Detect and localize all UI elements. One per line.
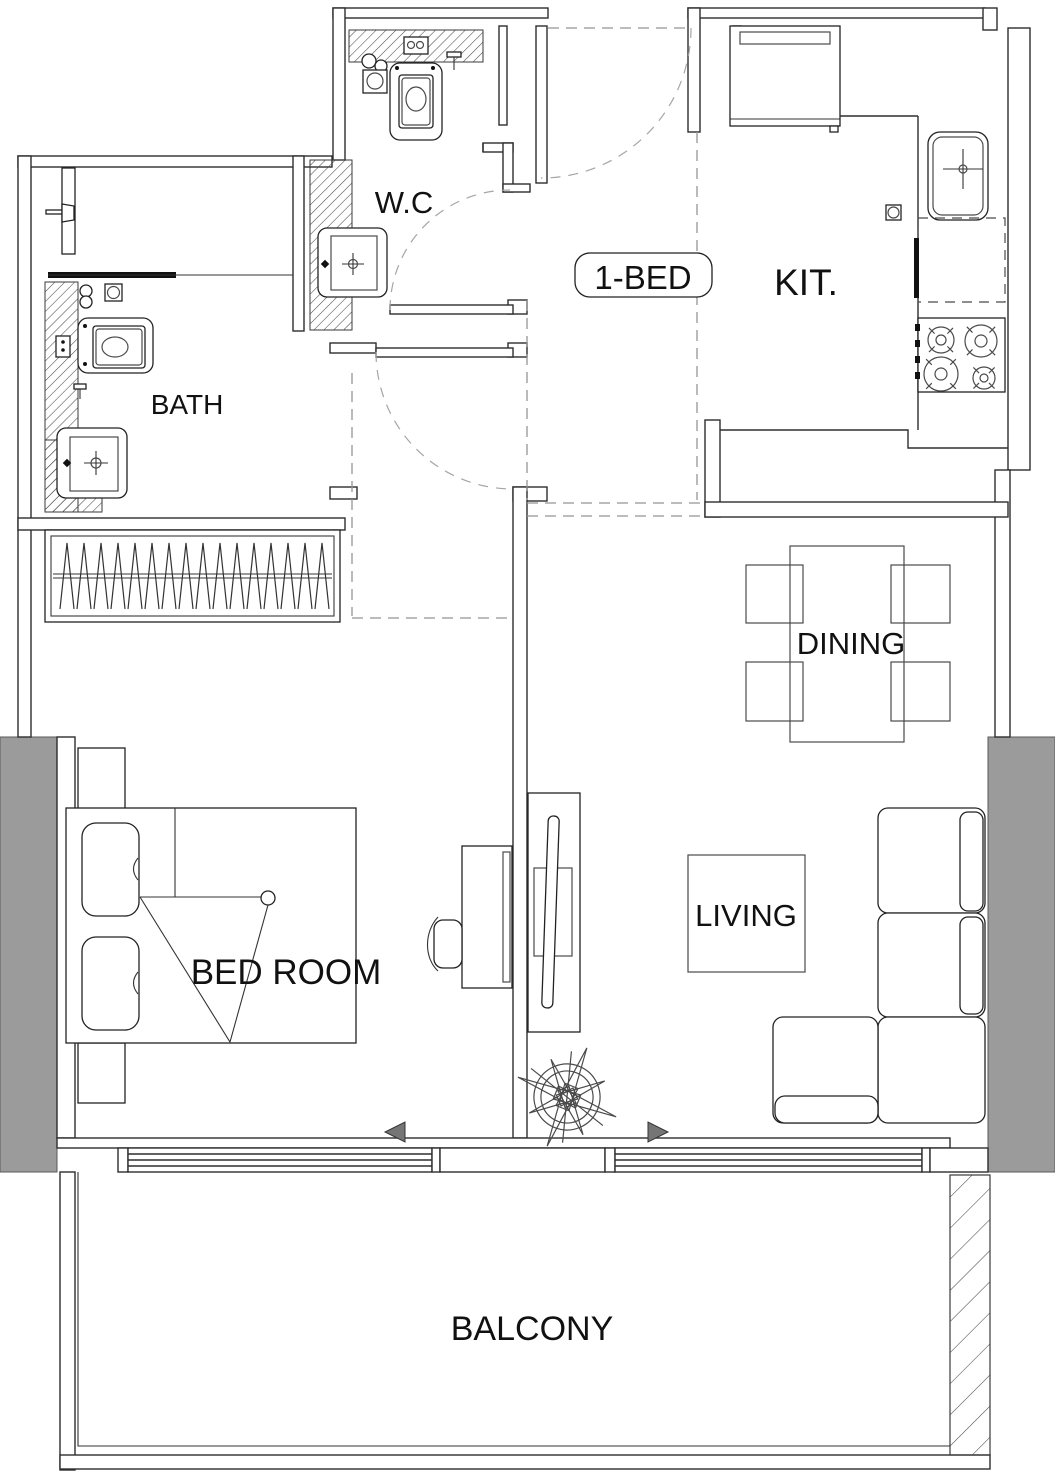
bath-label: BATH — [151, 389, 224, 420]
entry-door-swing — [541, 28, 691, 178]
living-label: LIVING — [695, 898, 797, 933]
desk-chair — [434, 920, 462, 968]
bath-door-leaf — [376, 348, 513, 357]
wc-door-leaf — [390, 305, 513, 314]
stove — [911, 313, 1009, 404]
bedroom-label: BED ROOM — [191, 953, 382, 992]
unit-label: 1-BED — [594, 259, 691, 296]
floor-plan-page: W.C 1-BED KIT. BATH DINING LIVING BED RO… — [0, 0, 1055, 1476]
bath-fixtures — [46, 168, 293, 498]
floor-plan-drawing: W.C 1-BED KIT. BATH DINING LIVING BED RO… — [0, 0, 1055, 1476]
balcony-side-hatch — [950, 1175, 990, 1455]
dining-chair — [746, 565, 803, 623]
column-right — [988, 737, 1055, 1172]
dining-chair — [746, 662, 803, 721]
unit-badge: 1-BED — [575, 253, 712, 297]
balcony-windows — [118, 1148, 988, 1172]
walls — [18, 8, 1030, 1470]
kitchen-sink — [928, 132, 988, 220]
desk — [428, 846, 513, 988]
dishwasher-dashed — [918, 218, 1005, 302]
nightstand — [78, 1043, 125, 1103]
nightstand — [78, 748, 125, 810]
bath-wall-valve — [56, 336, 70, 357]
bath-tap — [80, 285, 92, 297]
dining-chair — [891, 565, 950, 623]
pillow — [82, 823, 139, 916]
wc-tap — [447, 52, 461, 57]
wardrobe-hangers — [58, 540, 330, 612]
kitchen-label: KIT. — [774, 262, 838, 303]
entry-door-leaf — [536, 26, 547, 183]
fridge — [730, 26, 840, 126]
living-furniture — [528, 793, 985, 1123]
balcony-inner-edge — [78, 1172, 950, 1446]
dining-label: DINING — [797, 626, 906, 661]
kitchen-fixtures — [720, 26, 1009, 448]
wc-flush-knob — [362, 54, 376, 68]
bath-door-swing — [376, 352, 513, 489]
pillow — [82, 937, 139, 1030]
bath-tap-2 — [74, 384, 86, 389]
wc-label: W.C — [375, 185, 434, 220]
balcony-label: BALCONY — [451, 1310, 614, 1348]
column-left — [0, 737, 57, 1172]
dining-chair — [891, 662, 950, 721]
tv-unit — [528, 793, 580, 1032]
shower-head — [46, 210, 62, 214]
room-labels: W.C 1-BED KIT. BATH DINING LIVING BED RO… — [151, 185, 906, 1348]
wardrobe — [45, 530, 340, 622]
bedroom-furniture — [66, 748, 512, 1103]
